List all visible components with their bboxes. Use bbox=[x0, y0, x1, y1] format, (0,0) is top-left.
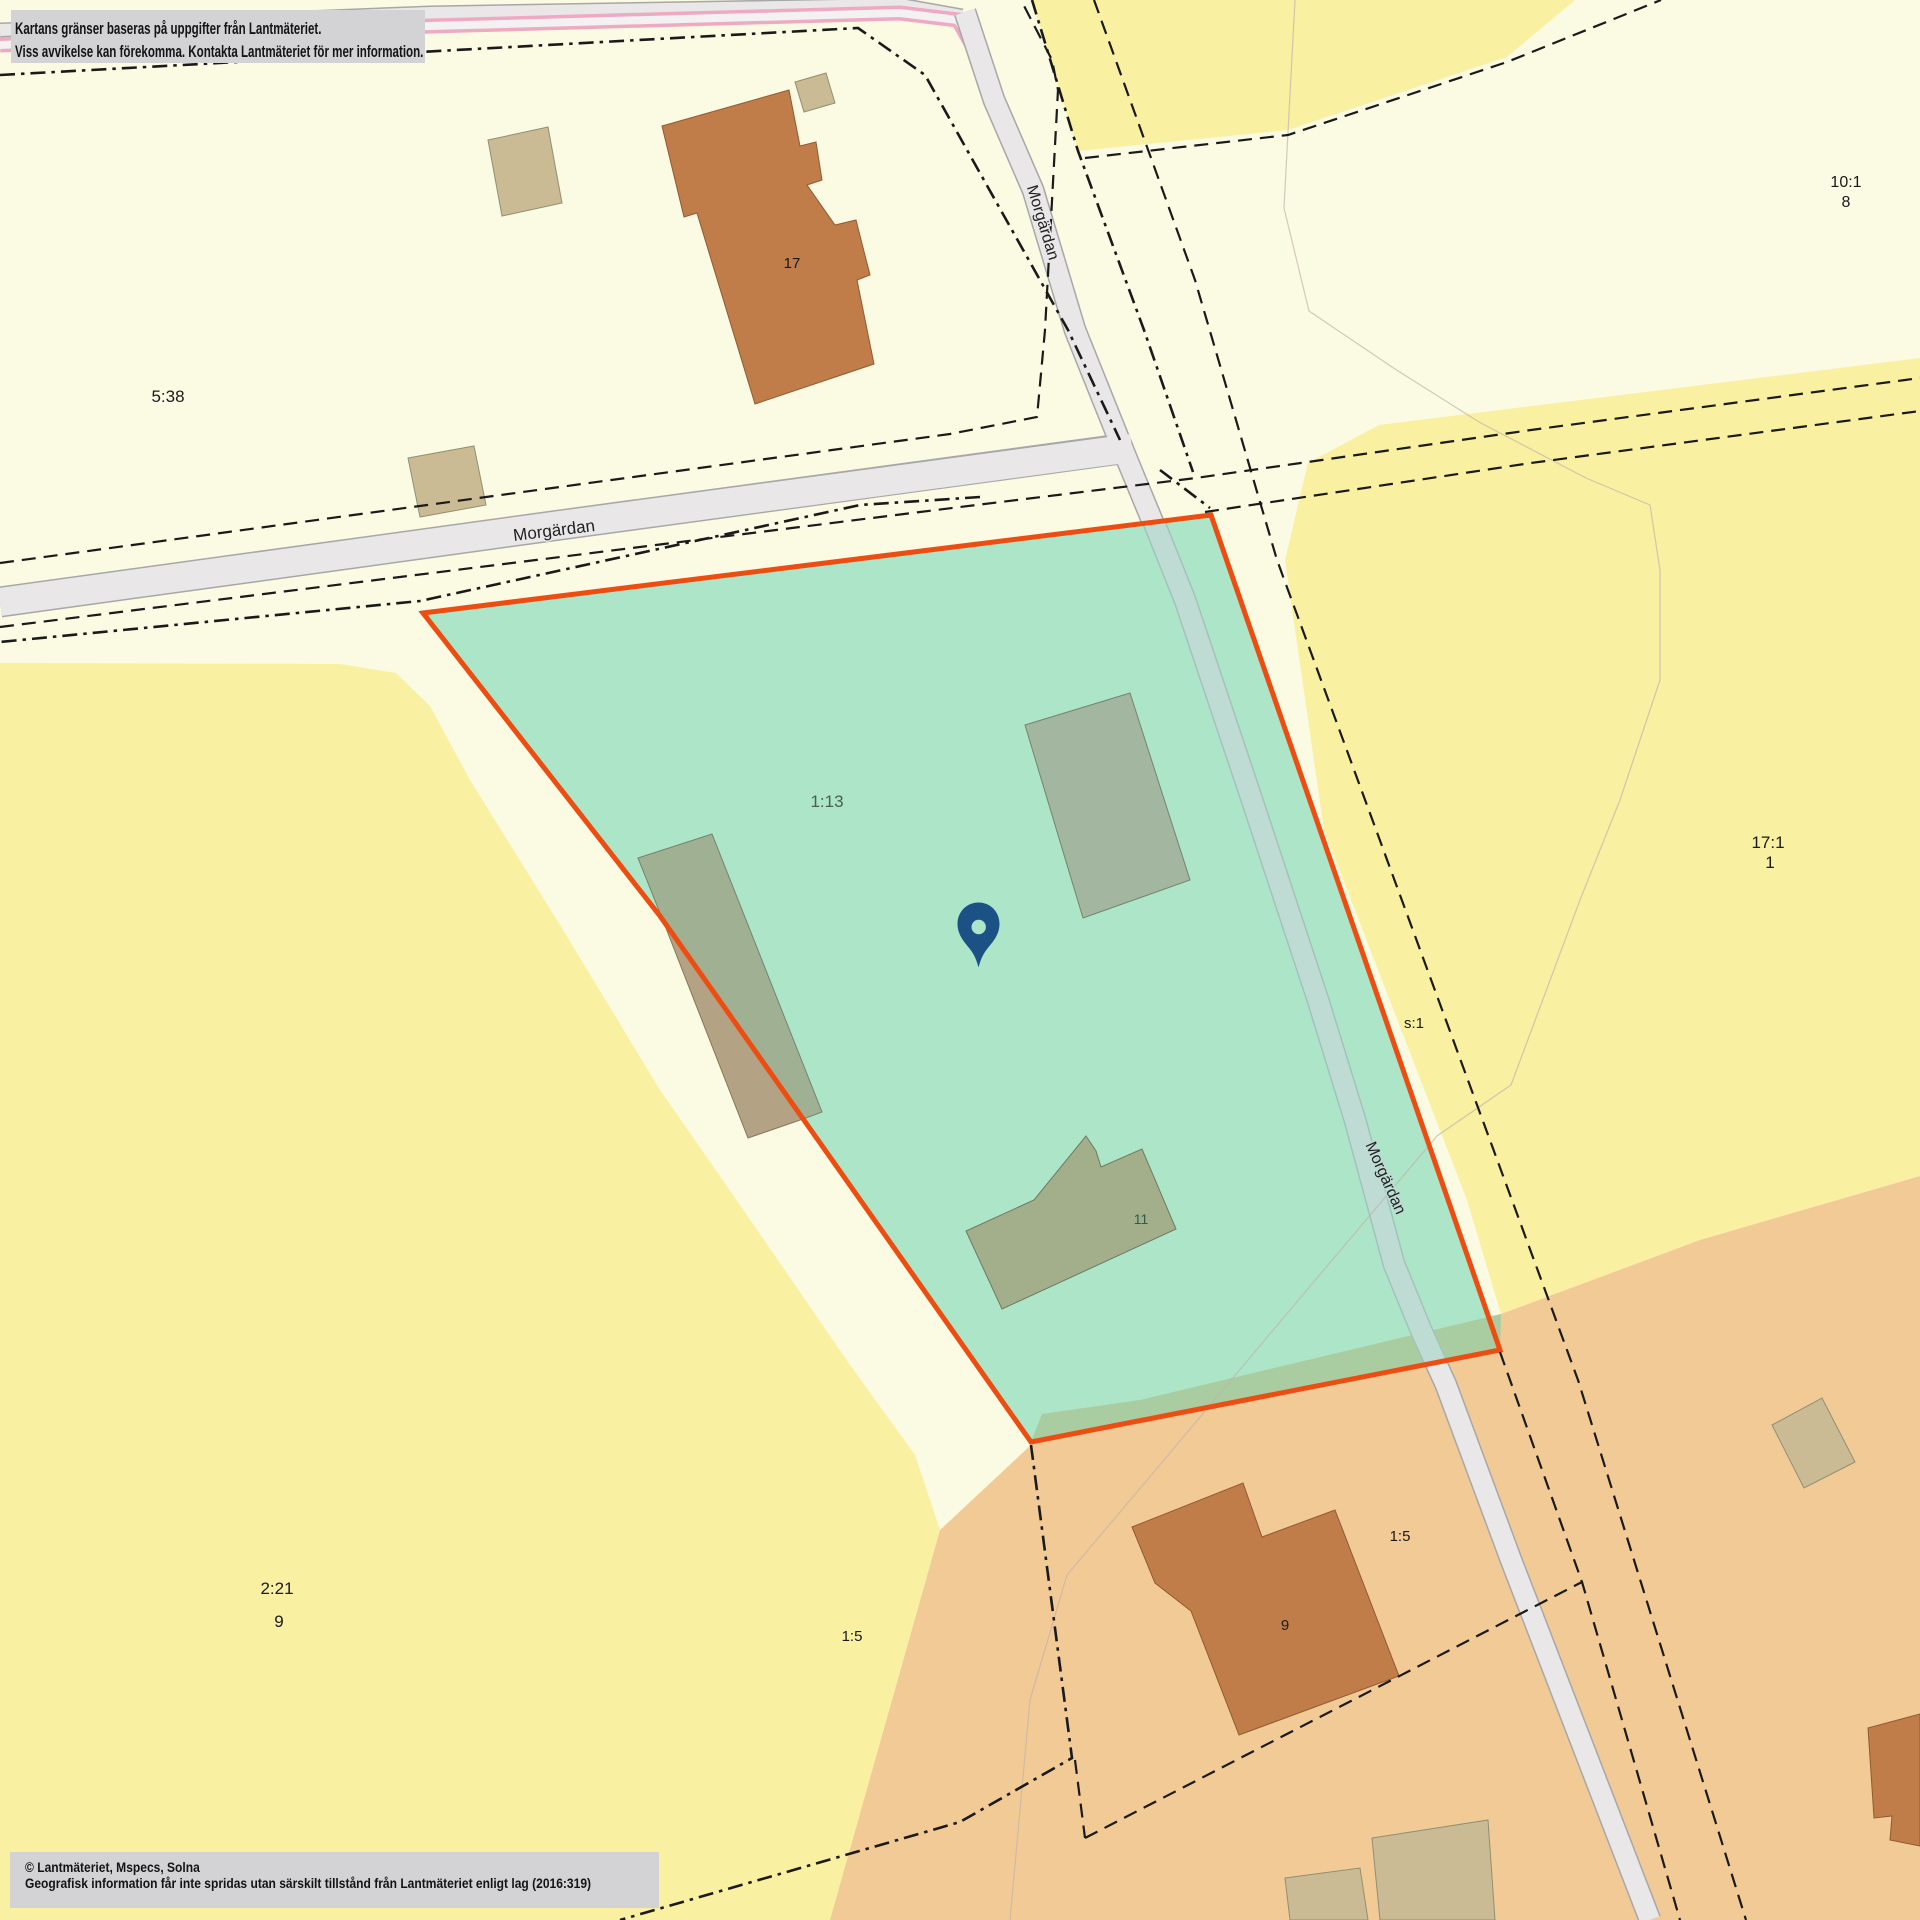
svg-text:1: 1 bbox=[1765, 853, 1774, 872]
svg-text:s:1: s:1 bbox=[1404, 1015, 1424, 1032]
svg-text:1:5: 1:5 bbox=[842, 1628, 863, 1645]
svg-text:1:5: 1:5 bbox=[1390, 1528, 1411, 1545]
svg-text:1:13: 1:13 bbox=[810, 792, 843, 811]
svg-text:10:1: 10:1 bbox=[1830, 174, 1861, 191]
svg-text:17: 17 bbox=[784, 255, 801, 272]
svg-text:5:38: 5:38 bbox=[151, 387, 184, 406]
svg-text:9: 9 bbox=[274, 1612, 283, 1631]
svg-text:8: 8 bbox=[1842, 194, 1851, 211]
svg-text:9: 9 bbox=[1281, 1617, 1289, 1634]
svg-text:2:21: 2:21 bbox=[260, 1579, 293, 1598]
svg-text:17:1: 17:1 bbox=[1751, 833, 1784, 852]
svg-text:11: 11 bbox=[1134, 1211, 1149, 1227]
